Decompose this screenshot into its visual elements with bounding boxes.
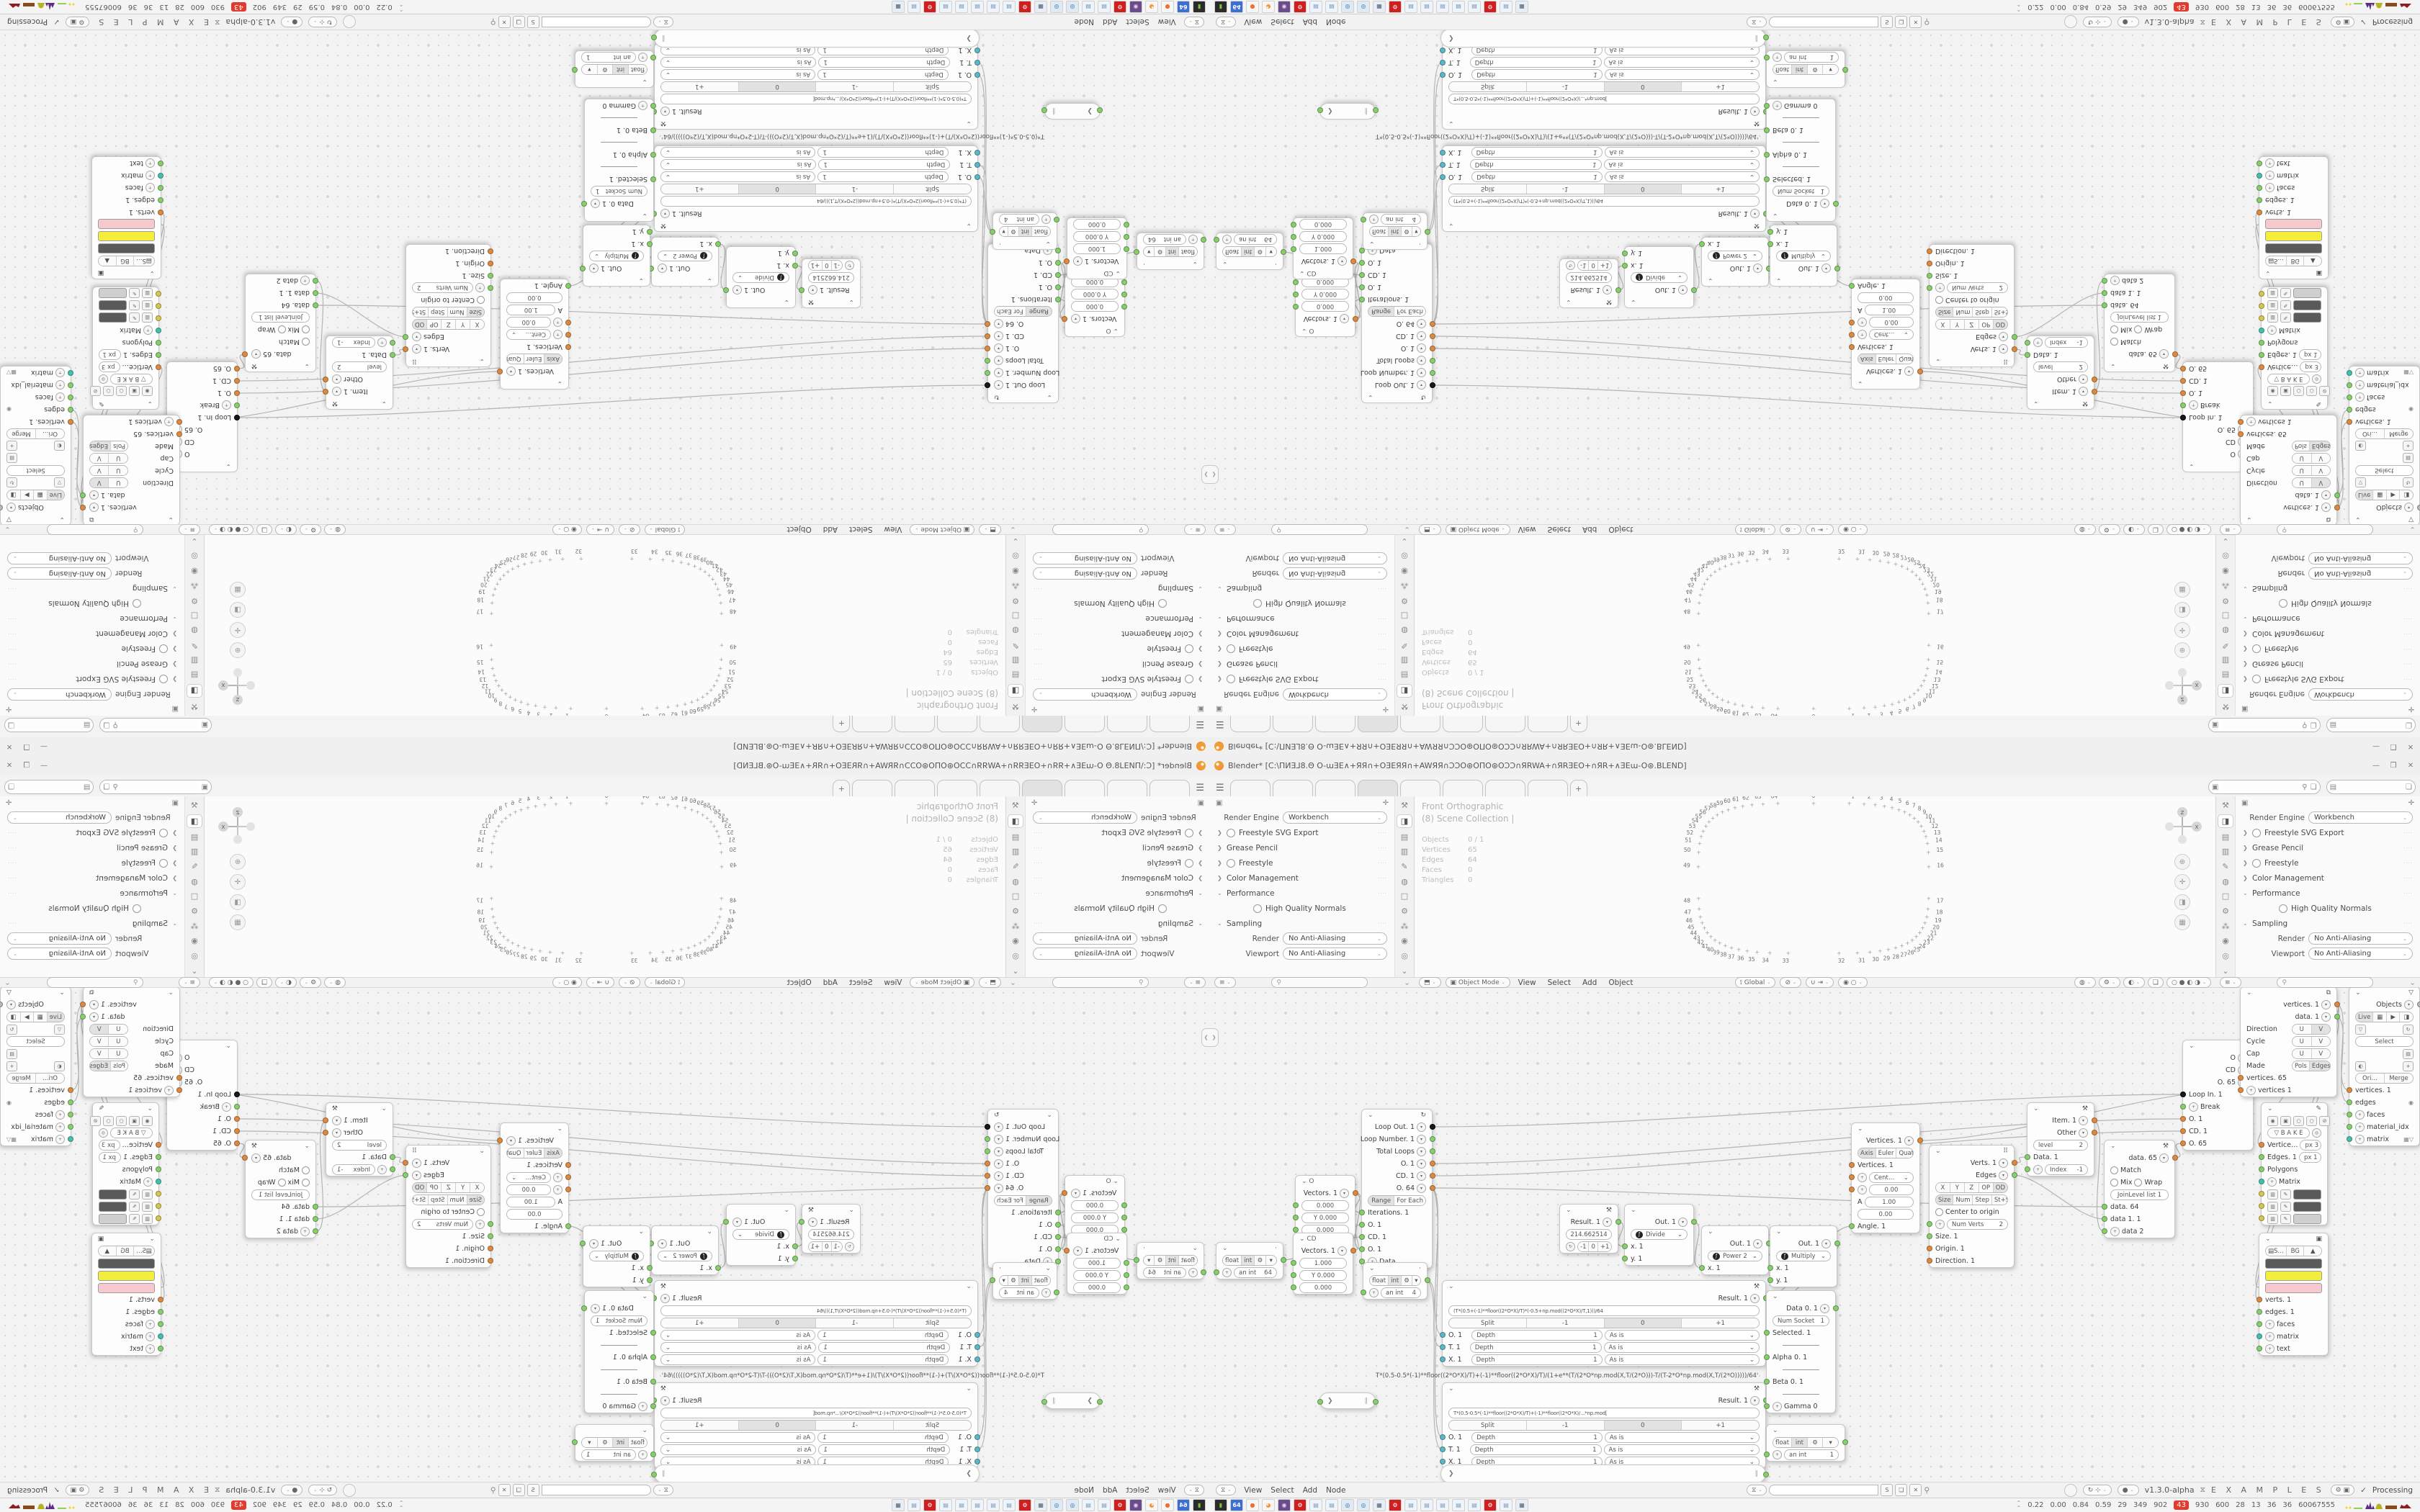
node-list-join[interactable]: ⌄⚒data. 65▾MatchMixWrapJoinLevel list 1d… [245,274,316,372]
action-button[interactable]: Select [6,1036,65,1047]
socket[interactable] [2259,1142,2264,1148]
socket-menu-icon[interactable]: ▾ [1417,319,1426,328]
notepad-icon[interactable]: ▤ [1309,1499,1322,1511]
view-layer-icon[interactable]: ▥ [187,845,202,858]
node-editor-canvas[interactable]: ❯ ⌄↻Loop Out. 1▾Loop Number. 1▾Total Loo… [0,988,1210,1482]
socket-menu-icon[interactable]: ▾ [1417,1171,1426,1181]
render-icon[interactable]: ◨ [1008,814,1023,829]
socket[interactable] [2257,1346,2262,1351]
scene-icon[interactable]: ✎ [187,860,202,873]
option-button[interactable]: V [90,466,109,475]
notepad-icon[interactable]: ▤ [1500,1,1512,13]
socket[interactable] [573,1439,578,1445]
socket-options-icon[interactable]: + [1041,215,1051,224]
properties-row[interactable]: RenderNo Anti-Aliasing⌄ [1026,566,1210,581]
socket-options-icon[interactable]: + [222,1102,231,1112]
socket[interactable] [1056,1246,1062,1252]
tool-icon[interactable]: + [2403,1061,2414,1071]
node-editor-canvas[interactable]: ❯ ⌄↻Loop Out. 1▾Loop Number. 1▾Total Loo… [0,30,1210,524]
socket-menu-icon[interactable]: ▾ [2321,490,2331,500]
properties-row[interactable]: ViewportNo Anti-Aliasing⌄ [2236,551,2420,566]
proportional-dropdown[interactable]: ◉ ○⌄ [1838,524,1868,535]
socket[interactable] [1291,222,1296,228]
red-gear-icon[interactable]: ⚙ [1018,1499,1031,1511]
axis-gizmo[interactable]: ZX [2159,665,2205,706]
grid-ortho-icon[interactable]: ▦ [2174,914,2190,930]
tool-icon[interactable]: ▽ [2355,1025,2366,1035]
socket[interactable] [985,1148,991,1154]
node-vector-in-cd[interactable]: ⌄ CDVectors. 1▾1.000Y 0.0000.000 [1293,217,1353,279]
view-layer-icon[interactable]: ▥ [1008,654,1023,667]
constraints-icon[interactable]: ◎ [1008,550,1023,563]
node-uv-connection[interactable]: ⌄⧉vertices. 1▾data. 1▾DirectionUVCycleUV… [83,988,180,1097]
workspace-tab[interactable] [1315,780,1355,796]
socket[interactable] [1122,279,1128,285]
view-layer-selector[interactable]: ▤ ❏ [2326,718,2416,732]
socket-options-icon[interactable]: + [1935,1220,1945,1229]
socket[interactable] [1293,1215,1299,1220]
option-button[interactable]: OP [1979,1183,1994,1192]
pivot-dropdown[interactable]: ⊘⌄ [619,977,640,988]
node-result-214[interactable]: ⌄⚒Result. 1▾214.662514↻-10+1 [802,1204,861,1254]
notepad-icon[interactable]: ▤ [1468,1499,1481,1511]
checkbox[interactable] [302,1166,310,1174]
socket[interactable] [1917,369,1923,374]
pin-icon[interactable]: ✛ [1031,705,1037,713]
notepad-icon[interactable]: ▤ [1404,1499,1417,1511]
node-formula-2[interactable]: ⌄⚒Result. 1▾T*(0.5-0.5*(-1)**floor((2*O*… [654,1382,978,1469]
option-button[interactable]: float [1773,65,1792,74]
object-icon[interactable]: □ [2218,609,2233,622]
tool-icon[interactable]: ▣ [129,387,140,397]
socket[interactable] [2259,315,2264,321]
socket[interactable] [1124,1260,1130,1266]
node-math-divide[interactable]: ⌄Out. 1▾ƒDivide⌄x. 1y. 1 [1624,246,1694,308]
node-mesh-viewer-objects[interactable]: ⌄▽Objects▾Live▦▶◨▽↻Select▤◐+Ori…Mergever… [0,366,71,524]
option-button[interactable]: Z [441,1183,455,1192]
node-viewer-draw[interactable]: ⌄✎◉▣○○⊘▽ B A K E◎Vertice…px 3Edges. 1px … [2261,1102,2328,1225]
center-dropdown[interactable]: Cent…⌄ [506,329,551,340]
option-button[interactable]: Step [1973,1195,1991,1205]
menu-add[interactable]: Add [1299,18,1321,27]
node-rotate-vertices[interactable]: ⌄Vertices. 1▾AxisEulerQuatVertices. 1+Ce… [500,279,569,390]
node-math-multiply[interactable]: ⌄Out. 1▾ƒMultiply⌄x. 1y. 1 [583,225,650,287]
socket[interactable] [2257,1309,2262,1315]
option-button[interactable]: Merge [7,1074,35,1083]
px-field[interactable]: px 3 [2300,1140,2321,1151]
checkbox[interactable] [1227,829,1235,837]
workspace-tab[interactable] [852,780,892,796]
firefox-icon[interactable]: ● [1246,1,1259,13]
object-icon[interactable]: □ [1008,609,1023,622]
pin-icon[interactable]: ⚲ [490,18,496,27]
maximize-button[interactable]: ❒ [22,743,32,751]
option-button[interactable]: ▦ [2373,490,2387,500]
checkbox[interactable] [2252,645,2261,654]
socket[interactable] [403,346,409,352]
socket[interactable] [2257,197,2262,203]
transform-dropdown[interactable]: As is⌄ [1605,1330,1760,1341]
toolbar-toggle-icon[interactable]: ❯ [1201,465,1210,484]
output-icon[interactable]: ▤ [187,669,202,682]
overlays-dropdown[interactable]: ◐⌄ [275,977,297,988]
action-button[interactable]: JoinLevel list 1 [251,1189,310,1200]
socket[interactable] [2334,1002,2340,1007]
checkbox[interactable] [159,675,168,684]
option-button[interactable]: ◨ [2400,1012,2413,1022]
properties-row[interactable]: RenderNo Anti-Aliasing⌄ [1026,931,1210,946]
checkbox[interactable] [159,645,168,654]
socket[interactable] [975,1446,981,1452]
option-button[interactable]: Euler [1876,354,1897,364]
socket[interactable] [323,1117,329,1123]
node-loop-in[interactable]: ⌄↻Loop Out. 1▾Loop Number. 1▾Total Loops… [1361,243,1433,403]
socket[interactable] [313,302,319,308]
physics-icon[interactable]: ◉ [1397,935,1412,948]
node-uv-connection[interactable]: ⌄⧉vertices. 1▾data. 1▾DirectionUVCycleUV… [2240,415,2337,524]
close-icon[interactable]: ✕ [498,1484,511,1496]
number-field[interactable]: Index-1 [2045,1164,2088,1175]
overlay-toggle-button[interactable]: ●⌄ [281,17,302,27]
object-icon[interactable]: □ [2218,890,2233,903]
px-field[interactable]: px 1 [99,1152,121,1163]
menu-select[interactable]: Select [1544,526,1574,534]
editor-type-button[interactable]: ≡⌄ [2220,524,2241,535]
checkbox[interactable] [2134,325,2142,333]
option-button[interactable]: Split [1449,82,1527,91]
add-workspace-button[interactable]: + [1570,716,1587,732]
xray-button[interactable]: ❏ [256,977,272,988]
expand-icon[interactable]: ❯ [2243,829,2249,836]
transform-dropdown[interactable]: As is⌄ [1604,159,1760,170]
socket[interactable] [1849,332,1855,338]
expand-icon[interactable]: ❯ [1197,845,1203,851]
depth-field[interactable]: Depth1 [818,1354,949,1365]
workspace-tab[interactable] [980,780,1020,796]
collapse-menu-icon[interactable]: ⌄ [1404,526,1410,534]
scene-selector[interactable]: ▣ ⚲ ❏ [2208,780,2321,794]
socket[interactable] [488,248,494,254]
properties-row[interactable]: ⌄Performance···· [2236,611,2420,626]
collapse-menu-icon[interactable]: ⌄ [4,978,11,987]
option-button[interactable]: For Each [995,307,1026,316]
socket[interactable] [2102,290,2107,296]
expand-icon[interactable]: ❯ [1217,829,1223,836]
number-field[interactable]: an int1 [581,52,636,63]
editor-type-button[interactable]: ⧖⌄ [1216,17,1236,27]
particles-icon[interactable]: ⁂ [1008,919,1023,932]
app-menu-icon[interactable]: ☰ [1196,783,1204,793]
expand-icon[interactable]: ❯ [1217,676,1223,683]
socket[interactable] [985,1185,991,1191]
socket-menu-icon[interactable]: ▾ [732,285,742,294]
socket[interactable] [1927,1221,1932,1227]
notepad-icon[interactable]: ▤ [907,1,920,13]
properties-row[interactable]: ⌄Sampling···· [0,581,184,596]
socket[interactable] [1440,1332,1446,1338]
socket[interactable] [68,1136,74,1142]
socket[interactable] [985,321,991,327]
option-button[interactable]: ⚙ [1255,247,1265,256]
view-layer-field[interactable] [2339,721,2403,729]
option-button[interactable]: ⚙ [1402,227,1412,236]
tree-name-field[interactable] [542,1485,651,1495]
axis-gizmo[interactable]: ZX [2159,806,2205,847]
socket-menu-icon[interactable]: ▾ [994,1147,1003,1156]
world-icon[interactable]: ◍ [187,875,202,888]
socket-options-icon[interactable]: + [2189,1102,2198,1112]
chevron-down-icon[interactable]: ⌄ [2218,535,2233,548]
option-button[interactable]: V [2312,1025,2331,1034]
option-button[interactable]: float [1178,1256,1197,1265]
properties-row[interactable]: ViewportNo Anti-Aliasing⌄ [0,946,184,961]
option-button[interactable]: Split [893,1318,971,1328]
tool-icon[interactable]: ▤ [2403,454,2414,464]
collapse-menu-icon[interactable]: ⌄ [4,526,11,534]
tools-button[interactable]: ⚙ ▣ [66,1485,89,1495]
expand-icon[interactable]: ⌄ [2243,585,2249,592]
socket[interactable] [1927,1258,1932,1264]
node-formula-1[interactable]: ⌄⚒Result. 1▾(T*(0.5+(-1)**floor((2*O*X)/… [1442,145,1766,232]
socket[interactable] [1764,127,1770,133]
socket[interactable] [313,1216,319,1222]
workspace-tab[interactable] [1065,780,1105,796]
socket[interactable] [488,1233,494,1239]
option-button[interactable]: ▲ [2304,1246,2321,1256]
value-field[interactable]: 0.00 [1857,292,1914,303]
transform-dropdown[interactable]: As is⌄ [1605,69,1760,80]
socket[interactable] [1849,1162,1855,1168]
render-engine-dropdown[interactable]: Workbench⌄ [1033,811,1137,824]
maximize-button[interactable]: ❒ [2388,762,2398,770]
color-swatch[interactable] [2293,313,2321,323]
socket[interactable] [1214,237,1219,243]
socket-menu-icon[interactable]: ▾ [1603,1218,1612,1227]
properties-row[interactable]: ❯Grease Pencil···· [1210,840,1394,855]
center-dropdown[interactable]: Cent…⌄ [1869,329,1914,340]
socket[interactable] [1122,1215,1128,1220]
gimp-icon[interactable]: ◉ [1278,1499,1291,1511]
node-loop-in[interactable]: ⌄↻Loop Out. 1▾Loop Number. 1▾Total Loops… [987,243,1059,403]
antialiasing-dropdown[interactable]: No Anti-Aliasing⌄ [1283,552,1387,564]
number-field[interactable]: an int1 [1784,1449,1839,1460]
wheel-icon[interactable]: ◎ [1357,1,1370,13]
socket-menu-icon[interactable]: ▾ [994,1171,1003,1181]
menu-object[interactable]: Object [783,978,815,987]
socket[interactable] [2025,1166,2030,1172]
socket-options-icon[interactable]: + [638,1450,647,1459]
checkbox[interactable] [2110,338,2118,346]
node-rotate-vertices[interactable]: ⌄Vertices. 1▾AxisEulerQuatVertices. 1+Ce… [500,1122,569,1233]
antialiasing-dropdown[interactable]: No Anti-Aliasing⌄ [1283,567,1387,580]
socket[interactable] [1615,287,1621,293]
socket[interactable] [1849,1174,1855,1180]
notepad-icon[interactable]: ▤ [987,1,1000,13]
notepad-icon[interactable]: ▤ [1325,1499,1338,1511]
action-button[interactable]: JoinLevel list 1 [2110,312,2169,323]
notepad-icon[interactable]: ▤ [1468,1,1481,13]
pin-icon[interactable]: ⚲ [112,783,117,791]
number-field[interactable]: an int4 [1381,214,1421,225]
checkbox[interactable] [133,600,141,608]
option-button[interactable]: ▦ [33,490,47,500]
node-formula-1[interactable]: ⌄⚒Result. 1▾(T*(0.5+(-1)**floor((2*O*X)/… [1442,1280,1766,1367]
wheel-icon[interactable]: ◎ [1357,1499,1370,1511]
socket[interactable] [1764,176,1770,182]
expand-icon[interactable]: ❯ [2243,631,2249,637]
px-field[interactable]: px 3 [2300,361,2321,372]
toolbar-toggle-icon[interactable]: ❯ [1210,465,1219,484]
tool-icon[interactable]: ○ [103,1116,114,1126]
socket[interactable] [158,185,164,191]
socket[interactable] [156,1142,162,1148]
expand-icon[interactable]: ❯ [171,676,177,683]
socket[interactable] [566,1187,572,1192]
editor-type-button[interactable]: ⬒⌄ [1419,977,1441,988]
tool-icon[interactable]: ⚒ [2218,799,2233,812]
socket[interactable] [235,402,241,408]
option-button[interactable]: U [2293,1025,2312,1034]
socket[interactable] [235,366,241,372]
modifiers-icon[interactable]: ⚙ [1397,905,1412,918]
view-layer-icon[interactable]: ▥ [1397,654,1412,667]
socket[interactable] [975,1434,981,1440]
viewport-3d[interactable]: Front Orthographic (8) Scene Collection … [1415,796,2215,977]
mode-dropdown[interactable]: ▣ Object Mode⌄ [910,524,974,535]
socket[interactable] [1122,1202,1128,1208]
option-button[interactable]: ▤S… [2266,1246,2287,1256]
socket[interactable] [1054,1290,1060,1295]
checkbox[interactable] [302,1179,310,1187]
pin-icon[interactable]: ✛ [1383,799,1389,807]
socket[interactable] [156,303,162,309]
viewport-3d[interactable]: Front Orthographic (8) Scene Collection … [1415,535,2215,716]
socket[interactable] [1849,320,1855,325]
socket[interactable] [1440,1344,1446,1350]
option-button[interactable]: ▾ [1266,247,1276,256]
socket[interactable] [2257,161,2262,166]
properties-row[interactable]: ViewportNo Anti-Aliasing⌄ [1026,946,1210,961]
operation-dropdown[interactable]: ƒMultiply⌄ [1776,1251,1831,1261]
tool-icon[interactable]: ○ [116,1116,127,1126]
socket[interactable] [1359,272,1365,278]
option-button[interactable]: 0 [738,1421,816,1430]
option-button[interactable]: ▶ [20,490,34,500]
socket[interactable] [1124,1284,1130,1290]
properties-row[interactable]: ⌄Sampling···· [1026,916,1210,931]
step-button[interactable]: -1 [831,1242,842,1251]
particles-icon[interactable]: ⁂ [2218,919,2233,932]
tools-button[interactable]: ⚙ ▣ [2331,1485,2354,1495]
socket[interactable] [1842,1439,1848,1445]
notepad-icon[interactable]: ▤ [939,1,952,13]
editor-type-button[interactable]: ≡⌄ [1184,977,1206,988]
node-math-multiply[interactable]: ⌄Out. 1▾ƒMultiply⌄x. 1y. 1 [583,1225,650,1287]
action-button[interactable]: Select [2355,465,2414,476]
workspace-tab[interactable] [1400,780,1440,796]
checkbox[interactable] [1227,859,1235,868]
checkbox[interactable] [2110,1179,2118,1187]
socket-menu-icon[interactable]: ▾ [994,331,1003,341]
tool-icon[interactable]: ↻ [2403,1025,2414,1035]
workspace-tab[interactable] [1315,716,1355,732]
close-button[interactable]: ✕ [2406,762,2416,770]
menu-view[interactable]: View [1155,1486,1180,1495]
socket[interactable] [1764,1330,1770,1336]
option-button[interactable]: Axis [1858,1148,1876,1158]
option-button[interactable]: Num [447,307,467,317]
color-swatch[interactable] [2265,220,2322,230]
operation-dropdown[interactable]: ƒMultiply⌄ [1776,251,1831,261]
wheel-icon[interactable]: ◎ [1050,1,1063,13]
socket[interactable] [1430,358,1435,364]
option-button[interactable]: Num [447,1195,467,1205]
socket-options-icon[interactable]: + [145,1320,155,1329]
option-button[interactable]: Split [1449,184,1527,194]
world-icon[interactable]: ◍ [2218,624,2233,637]
node-input-switch[interactable]: ⌄Data 0. 1▾Num Socket1Selected. 1Alpha 0… [584,99,654,222]
editor-type-button[interactable]: ≡⌄ [179,524,200,535]
editor-type-button[interactable]: ⧖⌄ [1184,1485,1204,1495]
option-button[interactable]: U [109,1025,128,1034]
socket-options-icon[interactable]: + [55,368,65,377]
socket-menu-icon[interactable]: ▾ [1753,264,1762,273]
node-uv-connection[interactable]: ⌄⧉vertices. 1▾data. 1▾DirectionUVCycleUV… [2240,988,2337,1097]
properties-row[interactable]: RenderNo Anti-Aliasing⌄ [1210,931,1394,946]
toolbar-toggle-icon[interactable]: ❯ [1210,1028,1219,1047]
calculator-icon[interactable]: ▦ [1034,1,1047,13]
browse-tree-button[interactable]: ⧖⌄ [1747,1485,1767,1495]
socket[interactable] [235,378,241,384]
view-layer-icon[interactable]: ▥ [2218,845,2233,858]
antialiasing-dropdown[interactable]: No Anti-Aliasing⌄ [1033,948,1137,960]
scene-name-field[interactable] [121,783,199,791]
socket-options-icon[interactable]: + [638,53,647,62]
workspace-tab[interactable] [1443,716,1483,732]
color-swatch[interactable] [2265,232,2322,242]
notepad-icon[interactable]: ▤ [1436,1,1449,13]
option-button[interactable]: ⚙ [1008,227,1018,236]
socket[interactable] [156,340,162,346]
socket[interactable] [2012,334,2017,340]
antialiasing-dropdown[interactable]: No Anti-Aliasing⌄ [7,567,112,580]
search-input[interactable]: ⚲ [1271,977,1368,988]
expand-icon[interactable]: ⌄ [171,585,177,592]
socket[interactable] [1056,1222,1062,1228]
scene-name-field[interactable] [2221,721,2299,729]
socket[interactable] [651,127,657,133]
menu-select[interactable]: Select [1122,18,1152,27]
socket[interactable] [566,1223,572,1229]
node-a-number-1[interactable]: ⌄floatint⚙▾+an int1 [1766,50,1845,88]
expand-icon[interactable]: ❯ [1197,860,1203,866]
tool-icon[interactable]: ⊘ [2319,387,2330,397]
collapsed-node[interactable]: ❯‖ [1319,103,1376,120]
socket-menu-icon[interactable]: ▾ [412,344,421,354]
socket[interactable] [985,1161,991,1166]
color-swatch[interactable] [98,1259,155,1269]
socket[interactable] [985,382,991,388]
socket[interactable] [243,1155,248,1161]
option-button[interactable]: ▶ [2387,490,2401,500]
socket[interactable] [1062,1190,1068,1196]
socket[interactable] [2259,1215,2264,1221]
editor-type-button[interactable]: ≡⌄ [179,977,200,988]
socket-options-icon[interactable]: + [1773,53,1782,62]
socket[interactable] [1361,217,1366,222]
output-icon[interactable]: ▤ [2218,830,2233,843]
render-engine-dropdown[interactable]: Workbench⌄ [1283,811,1387,824]
